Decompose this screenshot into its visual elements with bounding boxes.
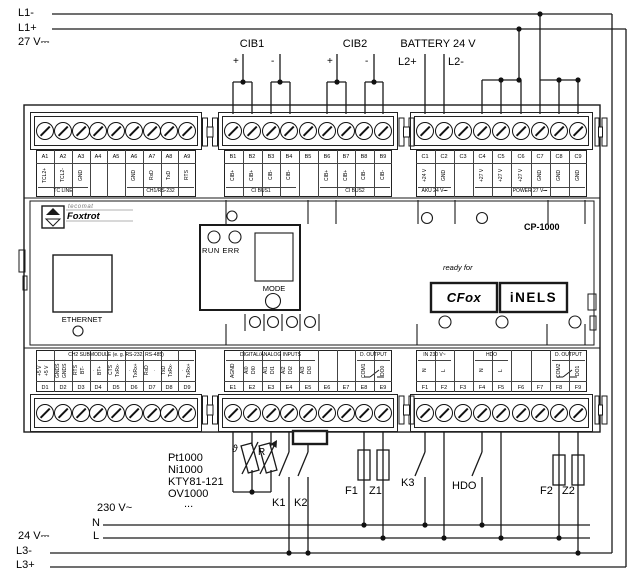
run-err-label: RUN ERR [202, 246, 240, 255]
cib2-plus-sign: + [327, 56, 333, 67]
brand-foxtrot: Foxtrot [67, 211, 100, 222]
cib2-minus-sign: - [365, 56, 368, 67]
k2-label: K2 [294, 497, 307, 510]
inels-logo: iNELS [500, 283, 567, 312]
l3-plus-label: L3+ [16, 559, 35, 572]
f2-label: F2 [540, 485, 553, 498]
dc-24v-label: 24 V⎓ [18, 530, 49, 543]
model-label: CP-1000 [524, 222, 560, 232]
theta-symbol-label: ϑ [232, 444, 238, 455]
z1-label: Z1 [369, 485, 382, 498]
supply-27v-label: 27 V⎓ [18, 36, 49, 49]
mode-label: MODE [255, 284, 293, 293]
l2-minus-label: L2- [448, 56, 464, 69]
k3-label: K3 [401, 477, 414, 490]
ready-for-label: ready for [443, 263, 473, 272]
cib1-minus-sign: - [271, 56, 274, 67]
l3-minus-label: L3- [16, 545, 32, 558]
cp1000-wiring-diagram: A1A2A3A4A5A6A7A8A9TCL2+TCL2-GNDGNDRxDTxD… [0, 0, 640, 583]
brand-tecomat: tecomat [68, 204, 94, 210]
cib1-label: CIB1 [231, 38, 273, 51]
l-label: L [93, 530, 99, 543]
hdo-label: HDO [452, 480, 476, 493]
k1-label: K1 [272, 497, 285, 510]
l2-plus-label: L2+ [398, 56, 417, 69]
r-symbol-label: R [258, 447, 265, 458]
ethernet-label: ETHERNET [52, 315, 112, 324]
sensor-type-ellipsis: ... [184, 498, 193, 511]
n-label: N [92, 517, 100, 530]
cfox-logo: CFox [431, 283, 497, 312]
cib2-label: CIB2 [334, 38, 376, 51]
battery-label: BATTERY 24 V [388, 38, 488, 51]
text-labels: L1- L1+ 27 V⎓ CIB1 + - CIB2 + - BATTERY … [0, 0, 640, 583]
l1-minus-label: L1- [18, 7, 34, 20]
z2-label: Z2 [562, 485, 575, 498]
cib1-plus-sign: + [233, 56, 239, 67]
l1-plus-label: L1+ [18, 22, 37, 35]
f1-label: F1 [345, 485, 358, 498]
mains-230v-label: 230 V~ [97, 502, 132, 515]
